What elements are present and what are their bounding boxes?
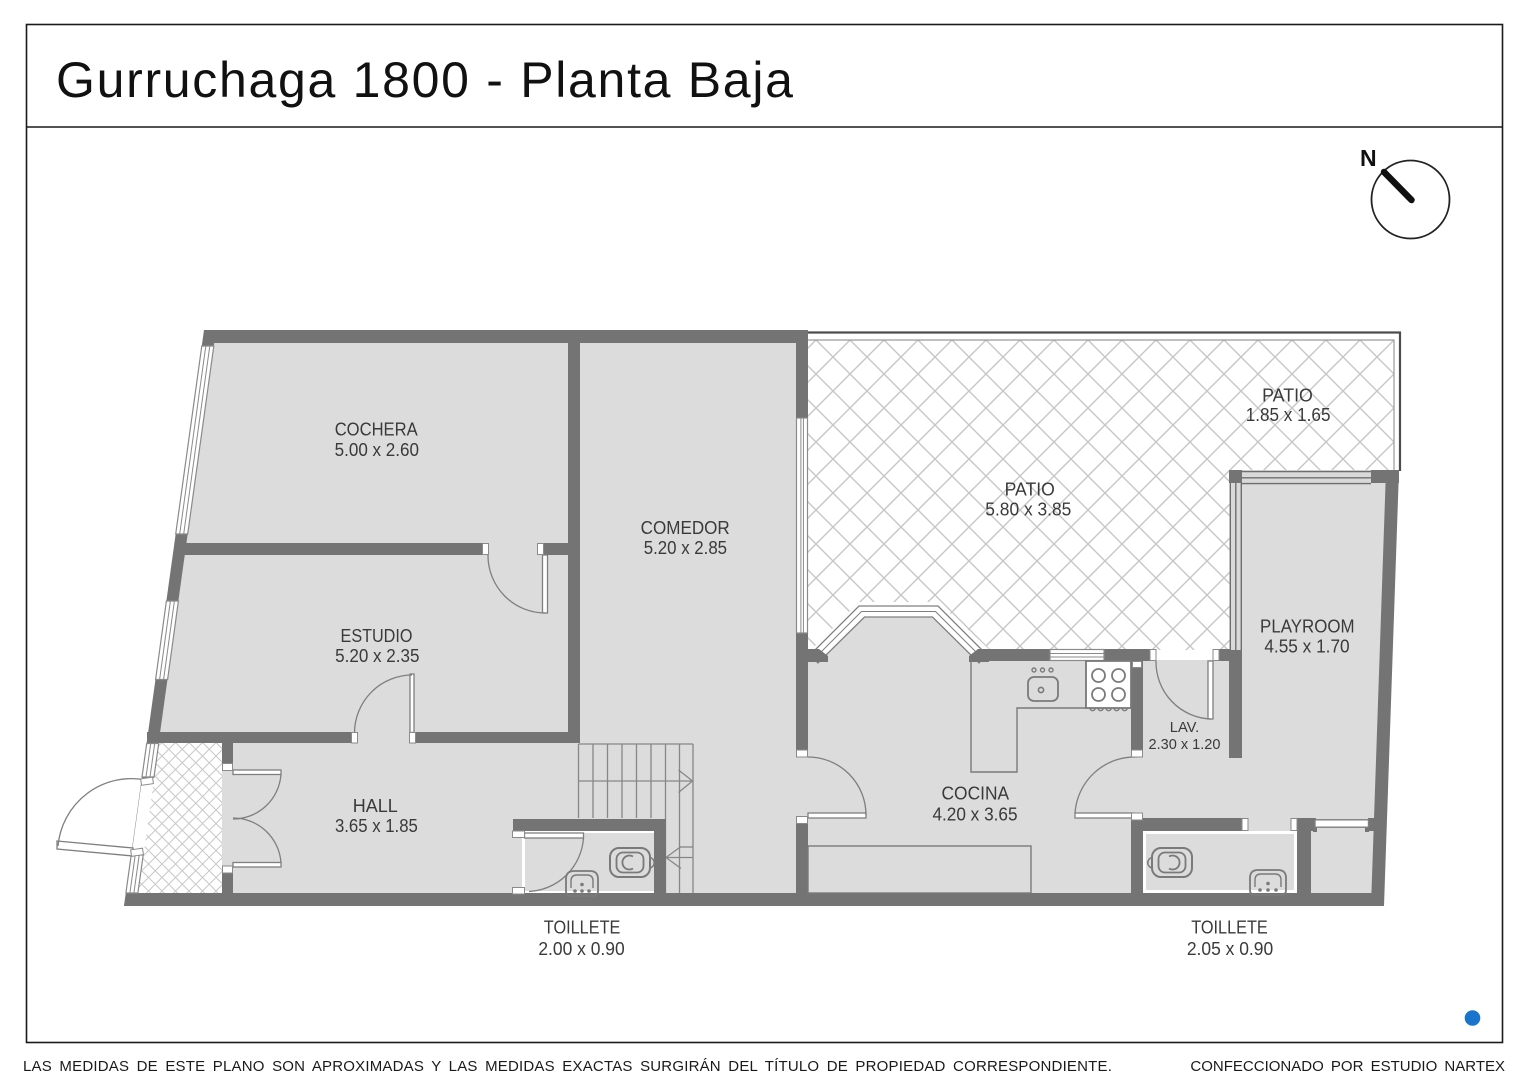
svg-text:5.00 x 2.60: 5.00 x 2.60 [335,439,419,460]
svg-text:2.00 x 0.90: 2.00 x 0.90 [538,938,624,959]
svg-text:PLAYROOM: PLAYROOM [1260,615,1355,636]
svg-text:TOILLETE: TOILLETE [1191,917,1268,938]
svg-text:N: N [1360,145,1377,171]
svg-text:5.20 x 2.35: 5.20 x 2.35 [335,645,419,666]
svg-text:PATIO: PATIO [1005,478,1055,499]
svg-text:PATIO: PATIO [1262,384,1313,405]
svg-text:COCINA: COCINA [942,782,1010,803]
svg-text:CONFECCIONADO POR ESTUDIO NART: CONFECCIONADO POR ESTUDIO NARTEX [1190,1058,1505,1075]
svg-text:LAS MEDIDAS DE ESTE PLANO SON: LAS MEDIDAS DE ESTE PLANO SON APROXIMADA… [23,1058,1112,1075]
svg-text:5.20 x 2.85: 5.20 x 2.85 [644,537,727,558]
svg-text:Gurruchaga 1800 - Planta Baja: Gurruchaga 1800 - Planta Baja [56,52,795,108]
svg-text:2.05 x 0.90: 2.05 x 0.90 [1187,938,1273,959]
svg-text:4.20 x 3.65: 4.20 x 3.65 [932,803,1017,824]
svg-text:5.80 x 3.85: 5.80 x 3.85 [985,498,1071,519]
svg-text:COCHERA: COCHERA [335,419,419,440]
svg-text:1.85 x 1.65: 1.85 x 1.65 [1246,404,1331,425]
svg-text:HALL: HALL [353,795,398,816]
svg-text:3.65 x 1.85: 3.65 x 1.85 [335,815,418,836]
svg-text:4.55 x 1.70: 4.55 x 1.70 [1264,636,1349,657]
svg-text:ESTUDIO: ESTUDIO [341,625,413,646]
svg-text:TOILLETE: TOILLETE [544,917,621,938]
svg-text:COMEDOR: COMEDOR [641,517,730,538]
svg-text:2.30 x 1.20: 2.30 x 1.20 [1149,736,1221,753]
svg-text:LAV.: LAV. [1170,719,1199,736]
